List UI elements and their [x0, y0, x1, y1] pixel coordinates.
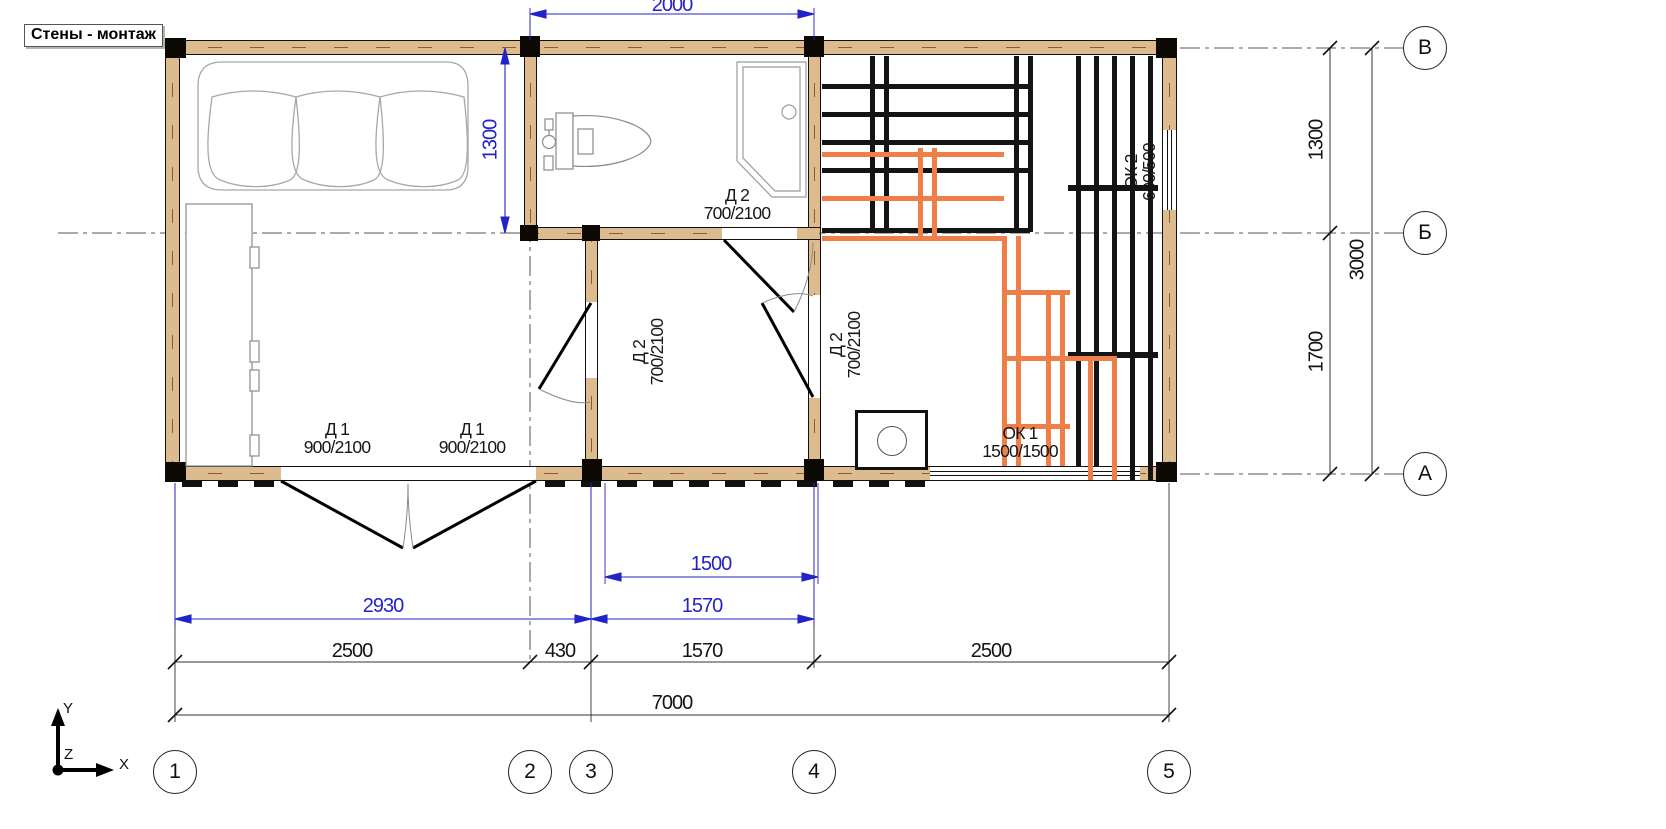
- door-name: Д 2: [704, 186, 771, 204]
- door-swing-arcs: [403, 243, 813, 548]
- grid-bubble-5: 5: [1147, 750, 1191, 794]
- drawing-overlay: [0, 0, 1666, 829]
- dim-right-1700: 1700: [1306, 332, 1329, 373]
- window-label-ok2: ОК 2 600/500: [1122, 143, 1158, 201]
- grid-bubble-label: А: [1418, 462, 1432, 486]
- grid-bubble-label: В: [1418, 36, 1432, 60]
- dim-total-7000: 7000: [652, 692, 693, 715]
- door-size: 700/2100: [648, 319, 666, 386]
- dim-2500-a: 2500: [332, 640, 373, 663]
- door-label-d2-hall-right: Д 2 700/2100: [827, 312, 863, 379]
- door-size: 700/2100: [845, 312, 863, 379]
- dim-right-1300: 1300: [1306, 120, 1329, 161]
- blue-extension-lines: [175, 8, 818, 626]
- grid-bubble-3: 3: [569, 750, 613, 794]
- window-name: ОК 1: [982, 424, 1058, 442]
- window-label-ok1: ОК 1 1500/1500: [982, 424, 1058, 460]
- sofa: [198, 62, 468, 190]
- cabinet: [186, 204, 259, 466]
- door-label-d1-left: Д 1 900/2100: [304, 420, 371, 456]
- view-title: Стены - монтаж: [24, 24, 163, 47]
- toilet: [543, 113, 652, 170]
- grid-bubble-a: А: [1403, 452, 1447, 496]
- dim-2500-b: 2500: [971, 640, 1012, 663]
- dim-hall-1570: 1570: [682, 595, 723, 618]
- window-name: ОК 2: [1122, 143, 1140, 201]
- grid-bubble-4: 4: [792, 750, 836, 794]
- dim-right-3000: 3000: [1347, 240, 1370, 281]
- extension-lines: [175, 483, 1169, 722]
- door-leaves: [281, 240, 813, 548]
- grid-bubble-b: Б: [1403, 211, 1447, 255]
- dim-top-2000: 2000: [652, 0, 693, 17]
- dim-1570: 1570: [682, 640, 723, 663]
- grid-bubble-2: 2: [508, 750, 552, 794]
- floor-plan-drawing: Стены - монтаж 2000 1300 1500 2930 1570 …: [0, 0, 1666, 829]
- grid-bubble-label: 2: [524, 760, 536, 784]
- ucs-x-label: X: [119, 756, 129, 773]
- dimension-ticks: [168, 41, 1379, 722]
- door-label-d2-bath: Д 2 700/2100: [704, 186, 771, 222]
- grid-bubble-label: Б: [1418, 221, 1432, 245]
- dim-entry-2930: 2930: [363, 595, 404, 618]
- dim-bath-1300: 1300: [480, 120, 503, 161]
- door-name: Д 2: [630, 319, 648, 386]
- entrance-door-leaf-left: [281, 481, 403, 548]
- ucs-z-label: Z: [64, 746, 73, 763]
- door-size: 900/2100: [304, 438, 371, 456]
- dim-hall-1500: 1500: [691, 553, 732, 576]
- dimension-rows: [175, 48, 1372, 715]
- shower-cabin: [737, 62, 806, 197]
- grid-bubble-v: В: [1403, 26, 1447, 70]
- door-name: Д 1: [304, 420, 371, 438]
- window-size: 600/500: [1140, 143, 1158, 201]
- entrance-door-leaf-right: [413, 481, 536, 548]
- window-size: 1500/1500: [982, 442, 1058, 460]
- ucs-icon: [51, 708, 114, 777]
- hall-right-door-leaf: [762, 303, 813, 397]
- door-size: 700/2100: [704, 204, 771, 222]
- grid-bubble-label: 5: [1163, 760, 1175, 784]
- door-label-d1-right: Д 1 900/2100: [439, 420, 506, 456]
- grid-bubble-1: 1: [153, 750, 197, 794]
- door-name: Д 2: [827, 312, 845, 379]
- grid-bubble-label: 4: [808, 760, 820, 784]
- bath-door-leaf: [724, 240, 794, 312]
- door-label-d2-hall-left: Д 2 700/2100: [630, 319, 666, 386]
- ucs-y-label: Y: [63, 700, 73, 717]
- dim-430: 430: [545, 640, 575, 663]
- grid-bubble-label: 1: [169, 760, 181, 784]
- door-size: 900/2100: [439, 438, 506, 456]
- door-name: Д 1: [439, 420, 506, 438]
- blue-dimension-lines: [175, 10, 818, 623]
- grid-bubble-label: 3: [585, 760, 597, 784]
- hall-left-door-leaf: [539, 303, 591, 389]
